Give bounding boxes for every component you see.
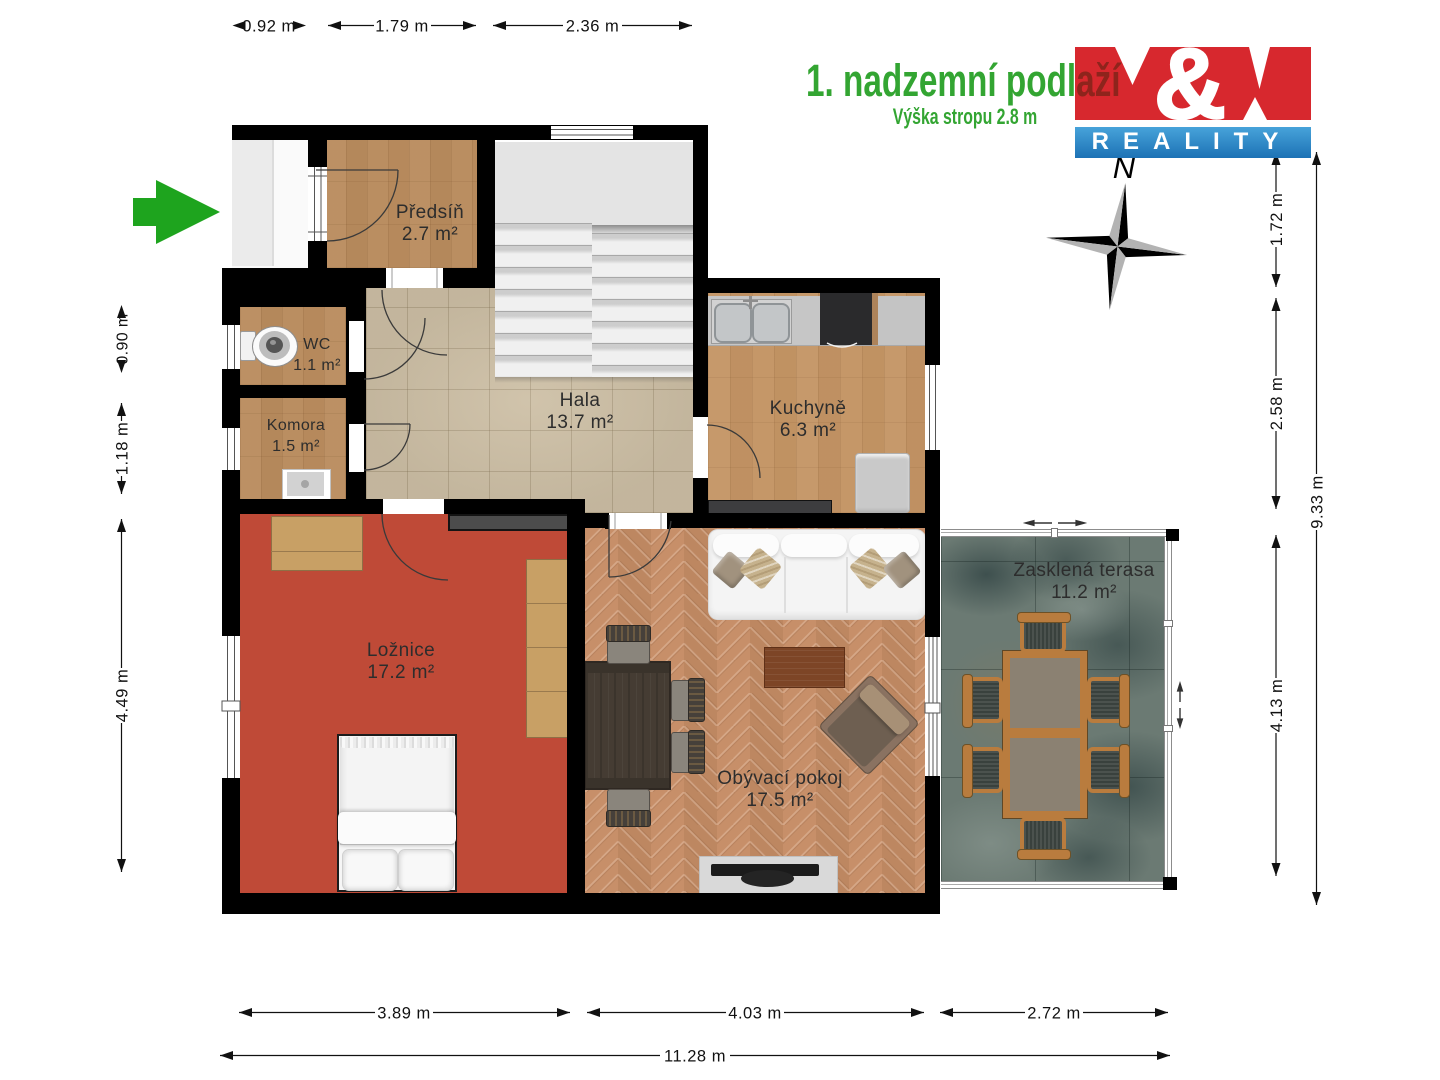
svg-text:2.72 m: 2.72 m bbox=[1027, 1005, 1080, 1023]
svg-text:4.03 m: 4.03 m bbox=[728, 1005, 781, 1023]
svg-text:3.89 m: 3.89 m bbox=[377, 1005, 430, 1023]
svg-text:1.72 m: 1.72 m bbox=[1268, 193, 1286, 246]
svg-text:1.18 m: 1.18 m bbox=[114, 422, 132, 475]
svg-text:0.90 m: 0.90 m bbox=[115, 313, 132, 364]
svg-text:1.79 m: 1.79 m bbox=[375, 18, 428, 36]
svg-text:9.33 m: 9.33 m bbox=[1309, 475, 1327, 528]
svg-text:2.58 m: 2.58 m bbox=[1268, 377, 1286, 430]
svg-text:4.49 m: 4.49 m bbox=[114, 669, 132, 722]
svg-text:11.28 m: 11.28 m bbox=[664, 1048, 726, 1066]
svg-text:0.92 m: 0.92 m bbox=[242, 18, 295, 36]
svg-text:4.13 m: 4.13 m bbox=[1268, 679, 1286, 732]
svg-text:&: & bbox=[1154, 28, 1226, 140]
svg-text:2.36 m: 2.36 m bbox=[566, 18, 619, 36]
svg-text:REALITY: REALITY bbox=[1092, 128, 1293, 155]
